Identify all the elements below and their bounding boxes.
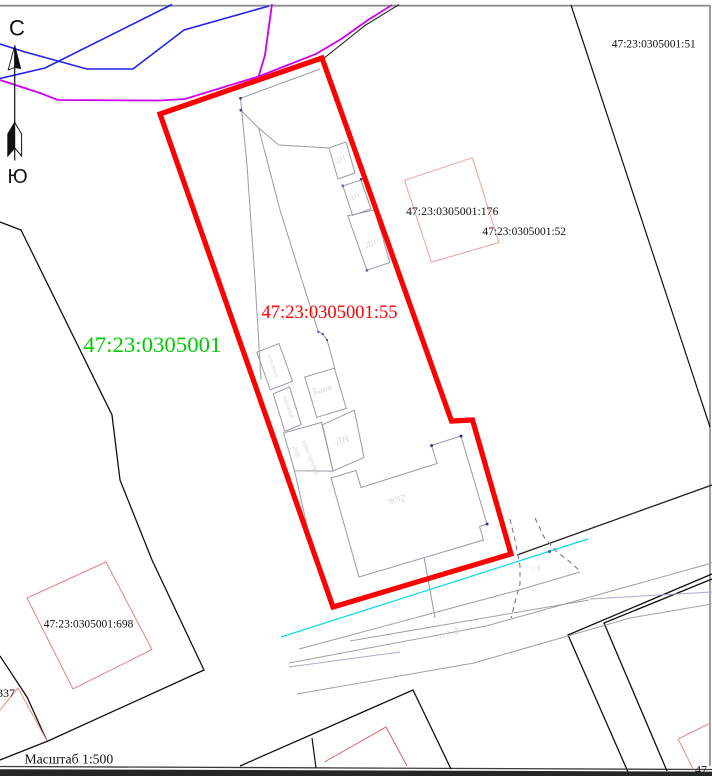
svg-text:С: С <box>9 16 25 41</box>
svg-text:47:23:0305001: 47:23:0305001 <box>83 332 221 357</box>
svg-text:47:23:0305001:52: 47:23:0305001:52 <box>483 224 567 238</box>
svg-text:Ю: Ю <box>8 166 28 188</box>
svg-text:47:23:0305001:55: 47:23:0305001:55 <box>262 302 398 323</box>
svg-text:337: 337 <box>0 686 15 700</box>
svg-text:47:23:0305001:51: 47:23:0305001:51 <box>612 36 696 50</box>
svg-text:Масштаб 1:500: Масштаб 1:500 <box>25 753 114 768</box>
svg-text:47:23:0305001:698: 47:23:0305001:698 <box>44 617 134 631</box>
svg-text:47:23:0305001:176: 47:23:0305001:176 <box>406 204 499 218</box>
